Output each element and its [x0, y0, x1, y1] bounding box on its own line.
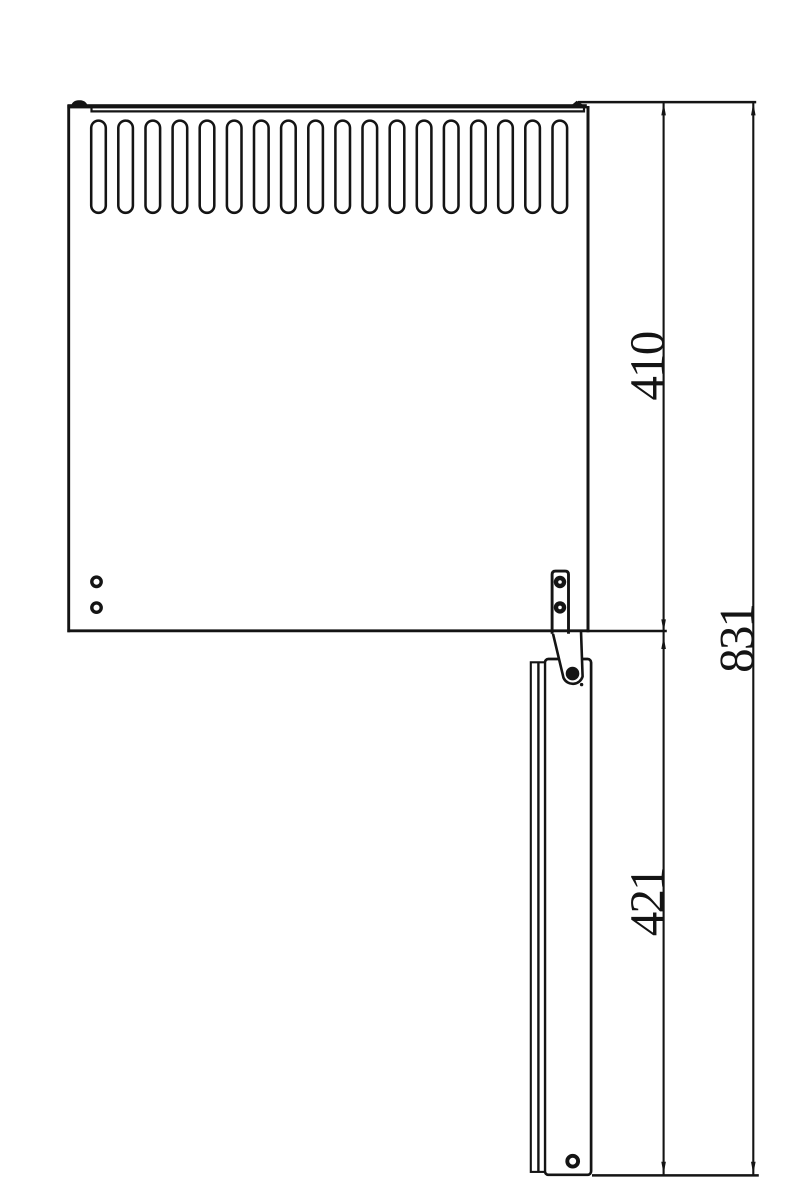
svg-text:831: 831	[709, 605, 764, 673]
svg-text:410: 410	[619, 332, 674, 400]
svg-text:421: 421	[619, 868, 674, 936]
